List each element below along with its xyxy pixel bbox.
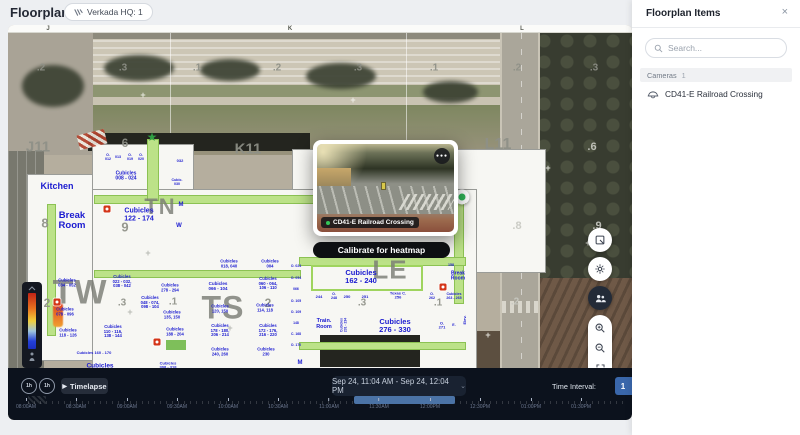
rewind-1h-button[interactable]: 1h <box>21 378 37 394</box>
camera-popup-card[interactable]: ●●● CD41-E Railroad Crossing <box>313 140 458 236</box>
grid-reference-label: 8 <box>41 216 48 231</box>
survey-cross-mark: + <box>140 90 145 100</box>
room-label: 148 <box>293 322 299 326</box>
camera-name-label: CD41-E Railroad Crossing <box>333 219 414 226</box>
room-label: Kitchen <box>40 182 73 192</box>
grid-reference-label: .1 <box>434 298 442 309</box>
room-label: W <box>176 223 182 229</box>
site-selector-label: Verkada HQ: 1 <box>87 7 143 17</box>
chevron-down-icon: ⌄ <box>460 382 466 390</box>
room-label: M <box>298 360 303 366</box>
site-selector-chip[interactable]: Verkada HQ: 1 <box>64 3 153 21</box>
calibrate-heatmap-button[interactable]: Calibrate for heatmap <box>313 242 450 258</box>
person-icon <box>28 352 36 362</box>
timelapse-bar: 1h 1h ▶ Timelapse Sep 24, 11:04 AM - Sep… <box>8 368 632 420</box>
floorplan-items-sidebar: Floorplan Items × Cameras 1 CD41-E Railr… <box>632 0 800 435</box>
timeline-tick: 08:00AM <box>16 398 36 410</box>
room-label: Cubicles 114, 118 <box>256 303 273 312</box>
room-label: Cubicles 172 - 176, 216 - 220 <box>259 324 278 338</box>
room-label: 032 <box>177 159 184 163</box>
room-label: O. 105 <box>291 300 301 304</box>
close-icon[interactable]: × <box>782 6 788 18</box>
floorplan-app: Floorplans Verkada HQ: 1 <box>0 0 800 435</box>
grid-reference-label: .8 <box>512 220 521 232</box>
tick-label: 08:30AM <box>66 404 86 410</box>
survey-cross-mark: + <box>127 307 132 317</box>
room-label: O. 054 <box>291 277 301 281</box>
page-header: Floorplans Verkada HQ: 1 <box>0 0 632 25</box>
survey-cross-mark: + <box>485 330 490 340</box>
dome-camera-icon <box>647 90 659 99</box>
floorplan-document-icon <box>594 234 606 246</box>
camera-name-chip: CD41-E Railroad Crossing <box>321 217 419 228</box>
camera-online-dot <box>326 221 330 225</box>
room-label: Cubicles 034 - 052 <box>58 278 76 287</box>
date-range-selector[interactable]: Sep 24, 11:04 AM - Sep 24, 12:04 PM ⌄ <box>332 376 466 396</box>
timeline-tick: 11:00AM <box>319 398 339 410</box>
room-label: Cubicles 078 - 096 <box>56 307 74 316</box>
room-label: Cubicles 018, 040 <box>220 259 237 268</box>
room-label: 244 <box>316 295 323 299</box>
room-label: Cubicles 022 - 032, 038 - 042 <box>113 275 132 289</box>
room-label: O. 019 <box>127 154 133 162</box>
camera-item-label: CD41-E Railroad Crossing <box>665 89 763 99</box>
search-input[interactable] <box>668 43 768 53</box>
zoom-in-icon <box>594 322 606 334</box>
tick-label: 12:30PM <box>470 404 490 410</box>
timeline-tick: 12:00PM <box>420 398 440 410</box>
room-label: Cubic. 030 <box>172 179 183 187</box>
timeline-tick: 08:30AM <box>66 398 86 410</box>
grid-reference-label: .1 <box>430 63 438 74</box>
verkada-logo-icon <box>74 8 83 17</box>
survey-cross-mark: + <box>145 248 150 258</box>
tick-label: 12:00PM <box>420 404 440 410</box>
room-label: Texas C. 256 <box>390 292 406 301</box>
time-interval-selector[interactable]: 1 <box>615 377 632 395</box>
room-label: 250 <box>344 295 351 299</box>
tick-mark <box>580 398 581 401</box>
tick-mark <box>227 398 228 401</box>
room-label: O. 020 <box>138 154 144 162</box>
grid-reference-label: L11 <box>485 136 512 154</box>
room-label: Cubicles 162 - 240 <box>345 269 377 285</box>
camera-popup: ●●● CD41-E Railroad Crossing Calibrate f… <box>313 140 458 258</box>
fire-extinguisher-marker <box>154 339 161 346</box>
grid-reference-label: .3 <box>354 63 362 74</box>
tick-mark <box>75 398 76 401</box>
cameras-section-header: Cameras 1 <box>640 68 792 82</box>
grid-reference-label: K11 <box>235 141 262 158</box>
grid-reference-label: .3 <box>590 63 598 74</box>
room-label: Break Room <box>451 272 465 283</box>
tick-label: 09:30AM <box>167 404 187 410</box>
room-label: Elev. <box>463 315 467 324</box>
floor-watermark-letters: LE <box>372 255 407 286</box>
search-icon <box>654 44 663 53</box>
map-options-button[interactable] <box>588 257 612 281</box>
room-label: E. <box>452 324 455 328</box>
tick-mark <box>176 398 177 401</box>
timeline-tick: 10:30AM <box>268 398 288 410</box>
tick-label: 01:00PM <box>521 404 541 410</box>
room-label: C. 168 <box>291 333 301 337</box>
grid-reference-label: .3 <box>118 298 126 309</box>
room-label: 013 <box>115 156 121 160</box>
room-label: Cubicles 230 <box>257 347 274 356</box>
timeline-tick: 10:00AM <box>218 398 238 410</box>
room-label: O. 248 <box>331 293 337 301</box>
timeline-tick: 01:30PM <box>571 398 591 410</box>
legend-scale-icon <box>28 286 36 291</box>
room-label: O. 262 <box>429 293 435 301</box>
tick-label: 11:00AM <box>319 404 339 410</box>
room-label: Cubicles 060 - 064, 106 - 110 <box>259 277 278 291</box>
room-label: Break Room <box>59 211 86 232</box>
floorplan-levels-button[interactable] <box>588 228 612 252</box>
sidebar-title: Floorplan Items <box>646 8 720 19</box>
room-label: O. 109 <box>291 311 301 315</box>
grid-reference-label: .6 <box>587 141 596 153</box>
room-label: O. 271 <box>439 322 446 331</box>
room-label: Cubicles 263 - 265 <box>446 293 461 301</box>
room-label: M <box>179 202 184 208</box>
room-label: Cubicles 004 <box>261 259 278 268</box>
camera-preview-sign <box>381 182 386 190</box>
room-label: O. 170 <box>291 344 301 348</box>
tick-mark <box>479 398 480 401</box>
grid-reference-label: 6 <box>122 136 129 150</box>
grid-reference-label: .2 <box>513 63 521 74</box>
room-label: 251 <box>362 295 369 299</box>
heatmap-gradient-bar <box>28 293 36 349</box>
camera-list-item[interactable]: CD41-E Railroad Crossing <box>640 86 792 102</box>
timeline-tick: 09:00AM <box>117 398 137 410</box>
grid-reference-label: .1 <box>193 63 201 74</box>
tick-mark <box>379 398 380 401</box>
fire-extinguisher-marker <box>104 206 111 213</box>
cameras-section-count: 1 <box>682 71 686 80</box>
room-label: Train. Room <box>316 319 332 331</box>
play-icon: ▶ <box>62 383 67 390</box>
survey-cross-mark: + <box>545 163 550 173</box>
grid-reference-label: .3 <box>119 63 127 74</box>
timeline-tick: 12:30PM <box>470 398 490 410</box>
grid-reference-label: .2 <box>37 63 45 74</box>
zoom-in-button[interactable] <box>590 319 610 337</box>
room-label: Cubicles 276 - 330 <box>379 318 411 334</box>
forward-1h-button[interactable]: 1h <box>39 378 55 394</box>
room-label: Cubicles 066 - 104 <box>208 282 227 292</box>
cameras-section-label: Cameras <box>647 71 677 80</box>
time-interval-label: Time Interval: <box>552 382 596 391</box>
map-controls <box>586 228 614 381</box>
tick-mark <box>329 398 330 401</box>
fire-extinguisher-marker <box>54 299 61 306</box>
tick-mark <box>126 398 127 401</box>
people-icon <box>594 292 607 305</box>
room-label: O. 012 <box>105 154 111 162</box>
timeline-tick: 01:00PM <box>521 398 541 410</box>
room-label: 158 <box>448 264 454 268</box>
tick-label: 09:00AM <box>117 404 137 410</box>
tick-mark <box>429 398 430 401</box>
camera-pin-dot <box>459 194 466 201</box>
tick-mark <box>530 398 531 401</box>
date-range-label: Sep 24, 11:04 AM - Sep 24, 12:04 PM <box>332 377 455 395</box>
timeline-tick: 11:30AM <box>369 398 389 410</box>
room-label: Cubicles 240, 260 <box>211 347 228 356</box>
tick-label: 01:30PM <box>571 404 591 410</box>
tick-label: 11:30AM <box>369 404 389 410</box>
room-label: 066 <box>293 288 299 292</box>
grid-reference-label: .1 <box>169 297 177 308</box>
tick-mark <box>277 398 278 401</box>
room-label: O. 024 <box>291 265 301 269</box>
camera-preview-crosswalk <box>398 194 454 210</box>
room-label: Cubicles 135, 150 <box>163 310 180 319</box>
zoom-out-button[interactable] <box>590 339 610 357</box>
floorplan-map[interactable]: TWTSLETN J11K11L11.2.3.1.2.3.1.2.3.6.8.9… <box>8 25 632 420</box>
room-label: Cubicles 278 - 294 <box>161 283 179 292</box>
room-label: Cubicles 120, 150 <box>211 304 228 313</box>
popup-menu-button[interactable]: ●●● <box>434 148 450 164</box>
heatmap-legend <box>22 282 42 368</box>
grid-reference-label: .2 <box>511 297 519 308</box>
grid-reference-label: .2 <box>273 63 281 74</box>
room-label: Cubicles 160 - 170 <box>77 351 112 355</box>
room-label: Cubicles 188 - 204 <box>166 327 184 336</box>
camera-preview[interactable]: ●●● CD41-E Railroad Crossing <box>317 144 454 232</box>
timeline-tick: 09:30AM <box>167 398 187 410</box>
sidebar-search[interactable] <box>645 38 787 58</box>
room-label: Cubicles 008 - 024 <box>115 172 136 183</box>
tick-label: 10:30AM <box>268 404 288 410</box>
zoom-out-icon <box>594 342 606 354</box>
tick-label: 08:00AM <box>16 404 36 410</box>
room-label: Cubicles 110 - 116, 138 - 144 <box>104 325 122 339</box>
room-label: Cubicles 118 - 126 <box>59 328 76 337</box>
grid-reference-label: J11 <box>26 139 50 156</box>
room-label: Cubicles 048 - 074, 098 - 104 <box>141 296 160 310</box>
room-label: Cubicles 231 - 234 <box>340 318 347 332</box>
tick-mark <box>25 398 26 401</box>
timelapse-button[interactable]: ▶ Timelapse <box>61 378 108 394</box>
tick-label: 10:00AM <box>218 404 238 410</box>
occupancy-button[interactable] <box>588 286 612 310</box>
survey-cross-mark: + <box>350 95 355 105</box>
fire-extinguisher-marker <box>440 284 447 291</box>
gear-icon <box>594 263 606 275</box>
grid-reference-label: 2 <box>44 296 51 310</box>
timelapse-label: Timelapse <box>70 382 107 391</box>
survey-cross-mark: + <box>227 323 232 333</box>
sidebar-header: Floorplan Items × <box>632 0 800 28</box>
room-label: Cubicles 122 - 174 <box>124 207 154 222</box>
entrance-star-marker: ★ <box>147 130 158 144</box>
